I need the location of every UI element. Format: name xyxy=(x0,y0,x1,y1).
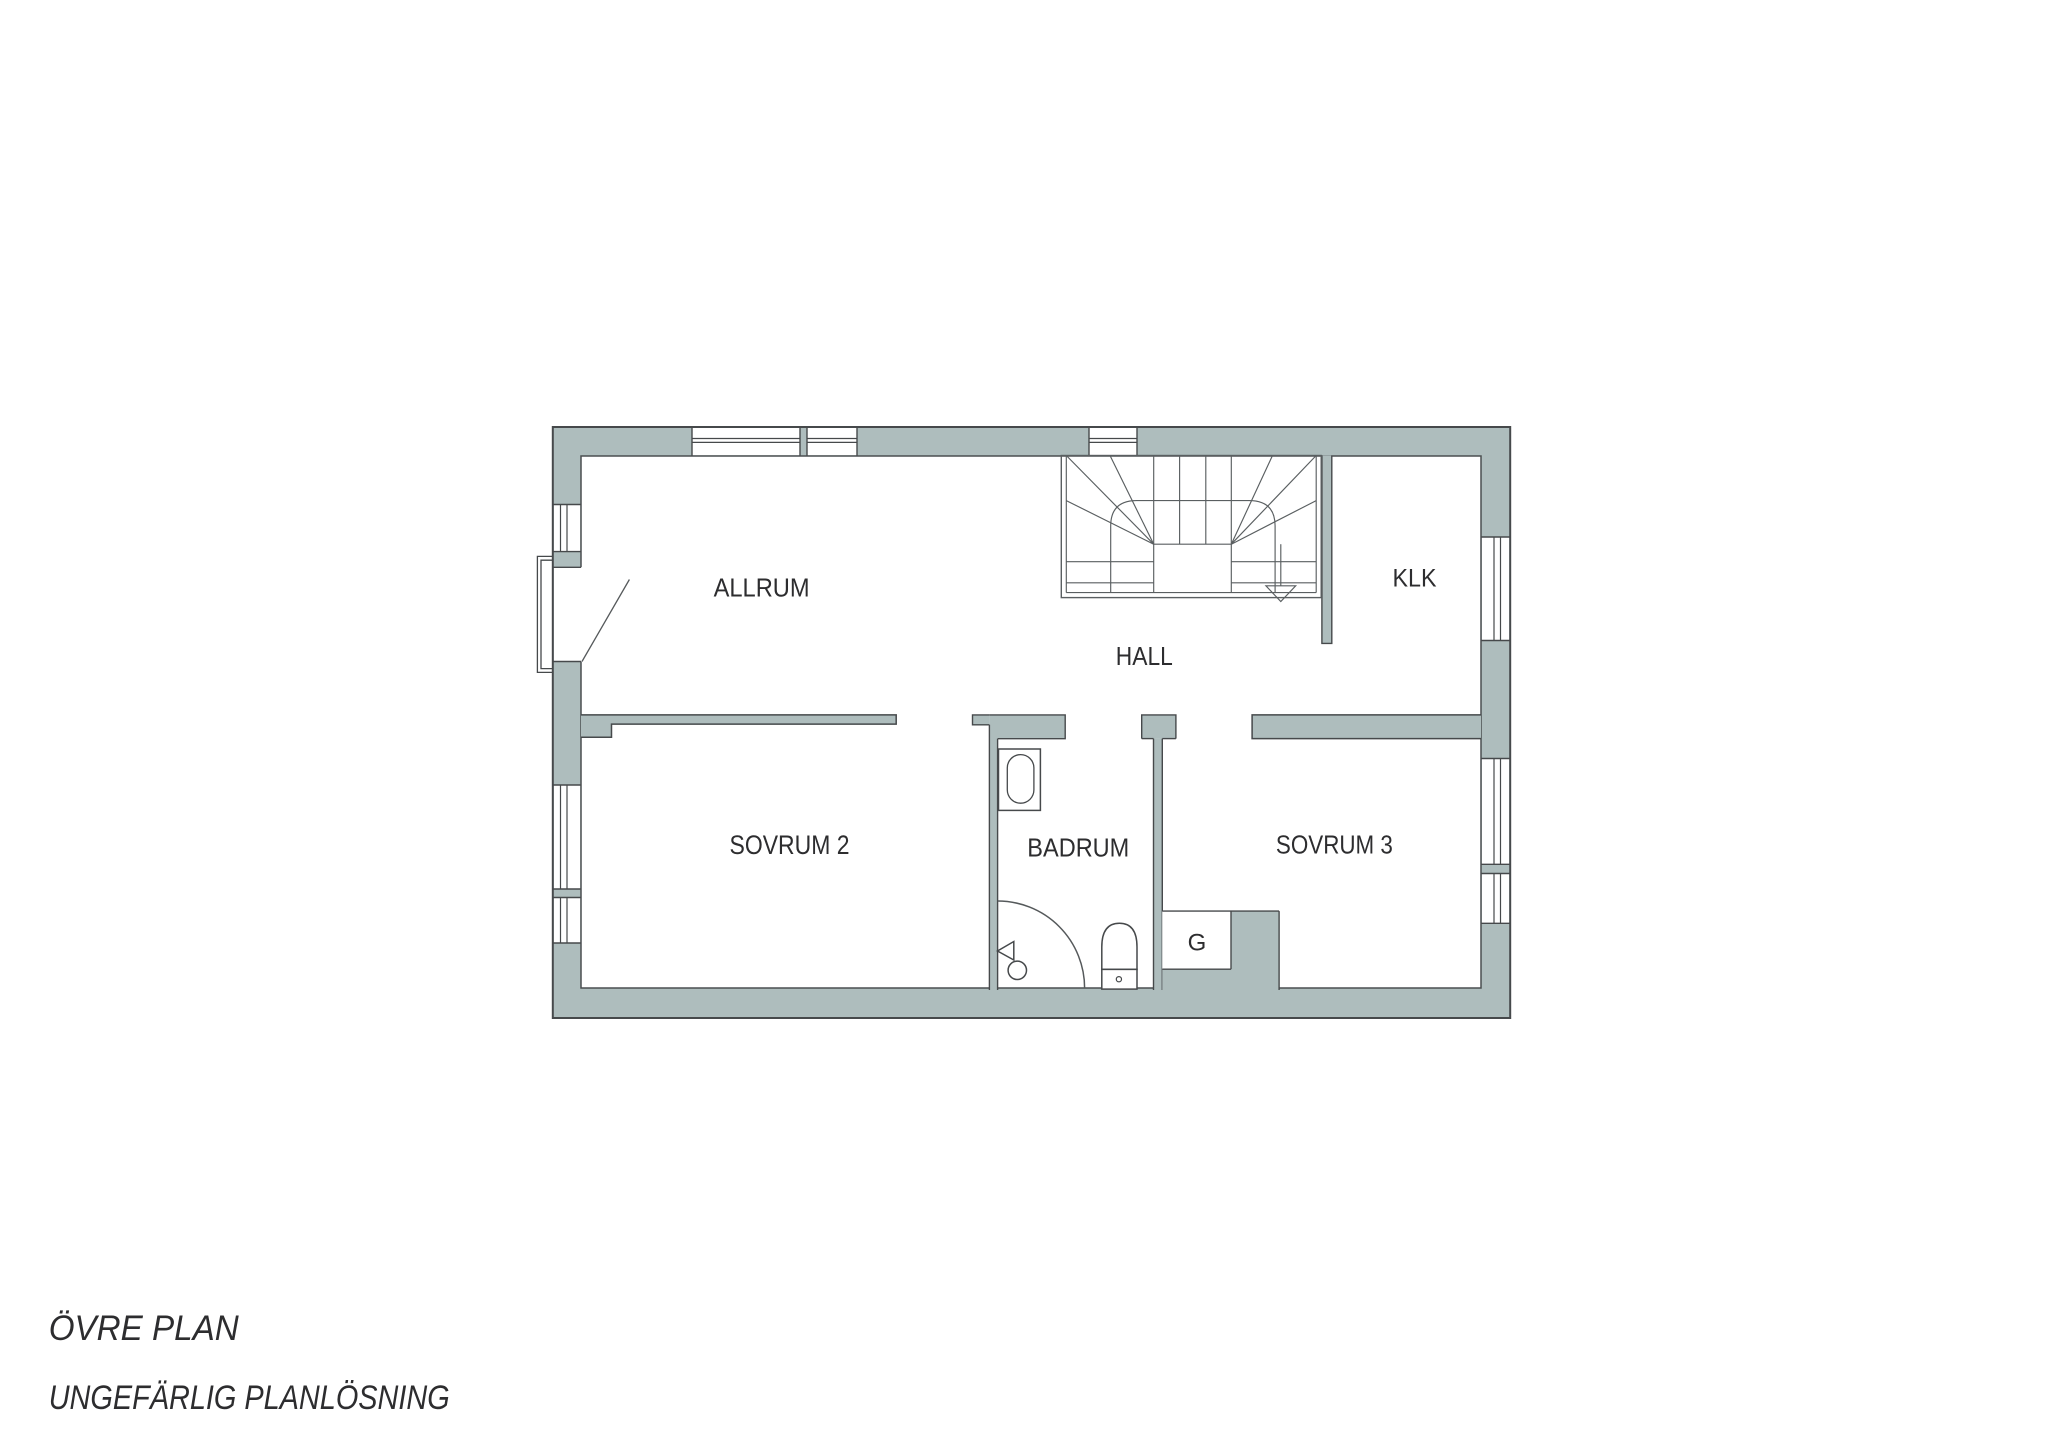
svg-text:KLK: KLK xyxy=(1393,565,1437,593)
svg-text:HALL: HALL xyxy=(1116,641,1173,671)
svg-text:G: G xyxy=(1188,929,1207,956)
svg-text:ALLRUM: ALLRUM xyxy=(714,573,810,603)
svg-text:SOVRUM 3: SOVRUM 3 xyxy=(1276,832,1393,860)
svg-text:SOVRUM 2: SOVRUM 2 xyxy=(730,830,850,860)
svg-text:BADRUM: BADRUM xyxy=(1027,835,1129,863)
svg-text:UNGEFÄRLIG PLANLÖSNING: UNGEFÄRLIG PLANLÖSNING xyxy=(49,1379,450,1417)
svg-text:ÖVRE PLAN: ÖVRE PLAN xyxy=(49,1309,240,1348)
